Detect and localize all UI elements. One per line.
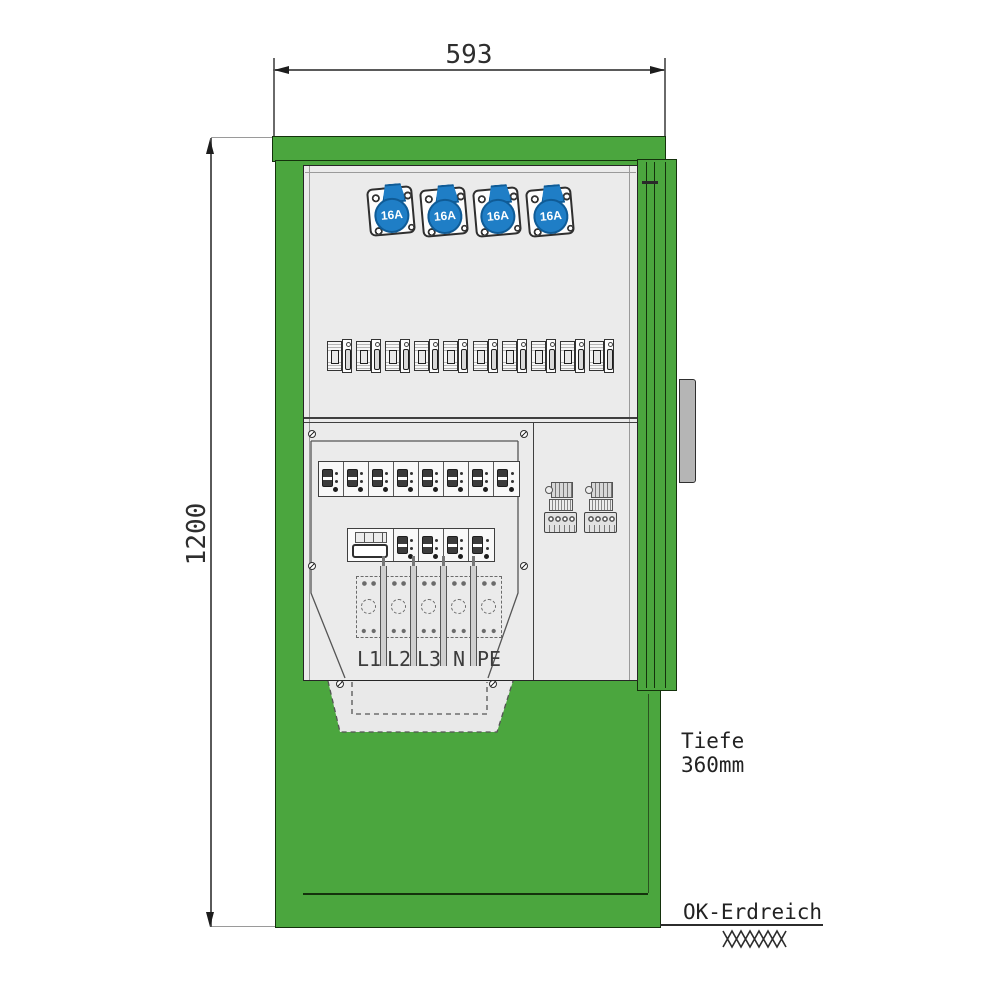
socket-rating-label: 16A bbox=[375, 199, 409, 233]
breaker-module bbox=[560, 341, 575, 371]
dim-arrow-up-icon bbox=[206, 139, 214, 154]
terminal-block-bottom bbox=[584, 512, 617, 533]
breaker-module bbox=[414, 341, 429, 371]
socket-rating-label: 16A bbox=[428, 200, 462, 234]
door-edge-line bbox=[654, 162, 655, 688]
terminal-block-middle bbox=[589, 499, 613, 511]
depth-note: Tiefe 360mm bbox=[681, 729, 744, 777]
ground-hatch-icon bbox=[722, 929, 792, 949]
rcd-switch[interactable] bbox=[348, 529, 394, 561]
breaker-toggle bbox=[447, 469, 458, 487]
fuse-contact bbox=[421, 599, 436, 614]
screw bbox=[489, 680, 497, 688]
terminal-cluster-1 bbox=[544, 482, 577, 533]
breaker-toggle bbox=[372, 469, 383, 487]
frame-line-right bbox=[629, 166, 630, 680]
screw bbox=[520, 430, 528, 438]
breaker-module-pair[interactable] bbox=[502, 339, 529, 373]
dim-arrow-down-icon bbox=[206, 912, 214, 927]
breaker-toggle bbox=[422, 469, 433, 487]
breaker-module bbox=[327, 341, 342, 371]
cabinet-roof bbox=[272, 136, 666, 162]
socket-face: 16A bbox=[426, 197, 464, 235]
dim-arrow-left-icon bbox=[274, 66, 289, 74]
terminal-label-pe: PE bbox=[474, 647, 504, 671]
sub-breaker[interactable] bbox=[394, 462, 419, 496]
screw bbox=[308, 562, 316, 570]
middle-section-divider bbox=[533, 422, 534, 680]
depth-note-line2: 360mm bbox=[681, 753, 744, 777]
ground-level-label: OK-Erdreich bbox=[683, 900, 822, 924]
sub-breaker-row-1 bbox=[318, 461, 520, 497]
breaker-toggle bbox=[347, 469, 358, 487]
terminal-block-middle bbox=[549, 499, 573, 511]
socket-rating-label: 16A bbox=[534, 200, 568, 234]
cabinet-technical-drawing: 593 1200 16A 16A bbox=[0, 0, 1000, 1000]
base-panel-line bbox=[303, 893, 648, 895]
fuse-base bbox=[356, 576, 382, 638]
fuse-base bbox=[386, 576, 412, 638]
sub-breaker[interactable] bbox=[494, 462, 519, 496]
breaker-module-pair[interactable] bbox=[589, 339, 616, 373]
height-extension-line-bottom bbox=[211, 926, 275, 927]
breaker-module-pair[interactable] bbox=[414, 339, 441, 373]
breaker-module-pair[interactable] bbox=[327, 339, 354, 373]
breaker-module bbox=[589, 341, 604, 371]
breaker-module bbox=[356, 341, 371, 371]
door-edge-line bbox=[665, 162, 666, 688]
width-dimension-label: 593 bbox=[404, 40, 534, 70]
panel-top-line bbox=[305, 172, 636, 173]
terminal-label-l2: L2 bbox=[384, 647, 414, 671]
breaker-module-pair[interactable] bbox=[356, 339, 383, 373]
cee-socket-2[interactable]: 16A bbox=[419, 186, 469, 238]
aux-module bbox=[517, 339, 527, 373]
breaker-toggle bbox=[447, 536, 458, 554]
breaker-module-pair[interactable] bbox=[443, 339, 470, 373]
breaker-toggle bbox=[322, 469, 333, 487]
section-divider-line-2 bbox=[304, 422, 637, 423]
height-extension-line-top bbox=[211, 137, 275, 138]
fuse-base bbox=[446, 576, 472, 638]
breaker-module bbox=[473, 341, 488, 371]
aux-module bbox=[575, 339, 585, 373]
breaker-module bbox=[443, 341, 458, 371]
aux-module bbox=[429, 339, 439, 373]
terminal-label-l1: L1 bbox=[354, 647, 384, 671]
fuse-base bbox=[416, 576, 442, 638]
terminal-cluster-2 bbox=[584, 482, 617, 533]
sub-breaker[interactable] bbox=[319, 462, 344, 496]
frame-line-left bbox=[309, 166, 310, 680]
breaker-toggle bbox=[472, 536, 483, 554]
breaker-toggle bbox=[397, 469, 408, 487]
aux-module bbox=[371, 339, 381, 373]
screw bbox=[520, 562, 528, 570]
breaker-module-pair[interactable] bbox=[560, 339, 587, 373]
main-breaker-row bbox=[327, 339, 616, 373]
breaker-toggle bbox=[497, 469, 508, 487]
side-step-line bbox=[648, 694, 649, 893]
socket-face: 16A bbox=[373, 196, 411, 234]
door-latch-tick bbox=[642, 181, 658, 184]
breaker-module bbox=[385, 341, 400, 371]
cee-socket-4[interactable]: 16A bbox=[525, 186, 575, 238]
screw bbox=[308, 430, 316, 438]
breaker-toggle bbox=[472, 469, 483, 487]
aux-module bbox=[604, 339, 614, 373]
cabinet-door[interactable] bbox=[637, 159, 677, 691]
fuse-contact bbox=[481, 599, 496, 614]
sub-breaker[interactable] bbox=[444, 529, 469, 561]
height-dimension-label: 1200 bbox=[182, 484, 212, 584]
terminal-block-top bbox=[551, 482, 573, 498]
door-outer-plate bbox=[679, 379, 696, 483]
sub-breaker[interactable] bbox=[419, 462, 444, 496]
cee-socket-3[interactable]: 16A bbox=[472, 186, 522, 238]
sub-breaker[interactable] bbox=[419, 529, 444, 561]
socket-rating-label: 16A bbox=[481, 200, 515, 234]
breaker-module-pair[interactable] bbox=[531, 339, 558, 373]
sub-breaker[interactable] bbox=[369, 462, 394, 496]
aux-module bbox=[458, 339, 468, 373]
terminal-label-l3: L3 bbox=[414, 647, 444, 671]
breaker-module-pair[interactable] bbox=[473, 339, 500, 373]
breaker-module bbox=[502, 341, 517, 371]
section-divider-line-1 bbox=[304, 417, 637, 419]
sub-breaker[interactable] bbox=[444, 462, 469, 496]
ground-level-line bbox=[660, 924, 823, 926]
fuse-base-row bbox=[356, 576, 502, 638]
cee-socket-1[interactable]: 16A bbox=[366, 185, 416, 237]
socket-face: 16A bbox=[479, 197, 517, 235]
sub-breaker[interactable] bbox=[469, 462, 494, 496]
breaker-toggle bbox=[397, 536, 408, 554]
fuse-contact bbox=[361, 599, 376, 614]
aux-module bbox=[546, 339, 556, 373]
fuse-contact bbox=[451, 599, 466, 614]
terminal-labels: L1 L2 L3 N PE bbox=[354, 647, 506, 671]
breaker-toggle bbox=[422, 536, 433, 554]
depth-note-line1: Tiefe bbox=[681, 729, 744, 753]
sub-breaker[interactable] bbox=[344, 462, 369, 496]
sub-breaker-group bbox=[319, 462, 519, 496]
aux-module bbox=[342, 339, 352, 373]
socket-face: 16A bbox=[532, 197, 570, 235]
terminal-block-bottom bbox=[544, 512, 577, 533]
terminal-block-top bbox=[591, 482, 613, 498]
terminal-label-n: N bbox=[444, 647, 474, 671]
sub-breaker[interactable] bbox=[394, 529, 419, 561]
fuse-contact bbox=[391, 599, 406, 614]
aux-module bbox=[488, 339, 498, 373]
breaker-module-pair[interactable] bbox=[385, 339, 412, 373]
aux-module bbox=[400, 339, 410, 373]
dim-arrow-right-icon bbox=[650, 66, 665, 74]
fuse-base bbox=[476, 576, 502, 638]
breaker-module bbox=[531, 341, 546, 371]
door-edge-line bbox=[646, 162, 647, 688]
screw bbox=[336, 680, 344, 688]
